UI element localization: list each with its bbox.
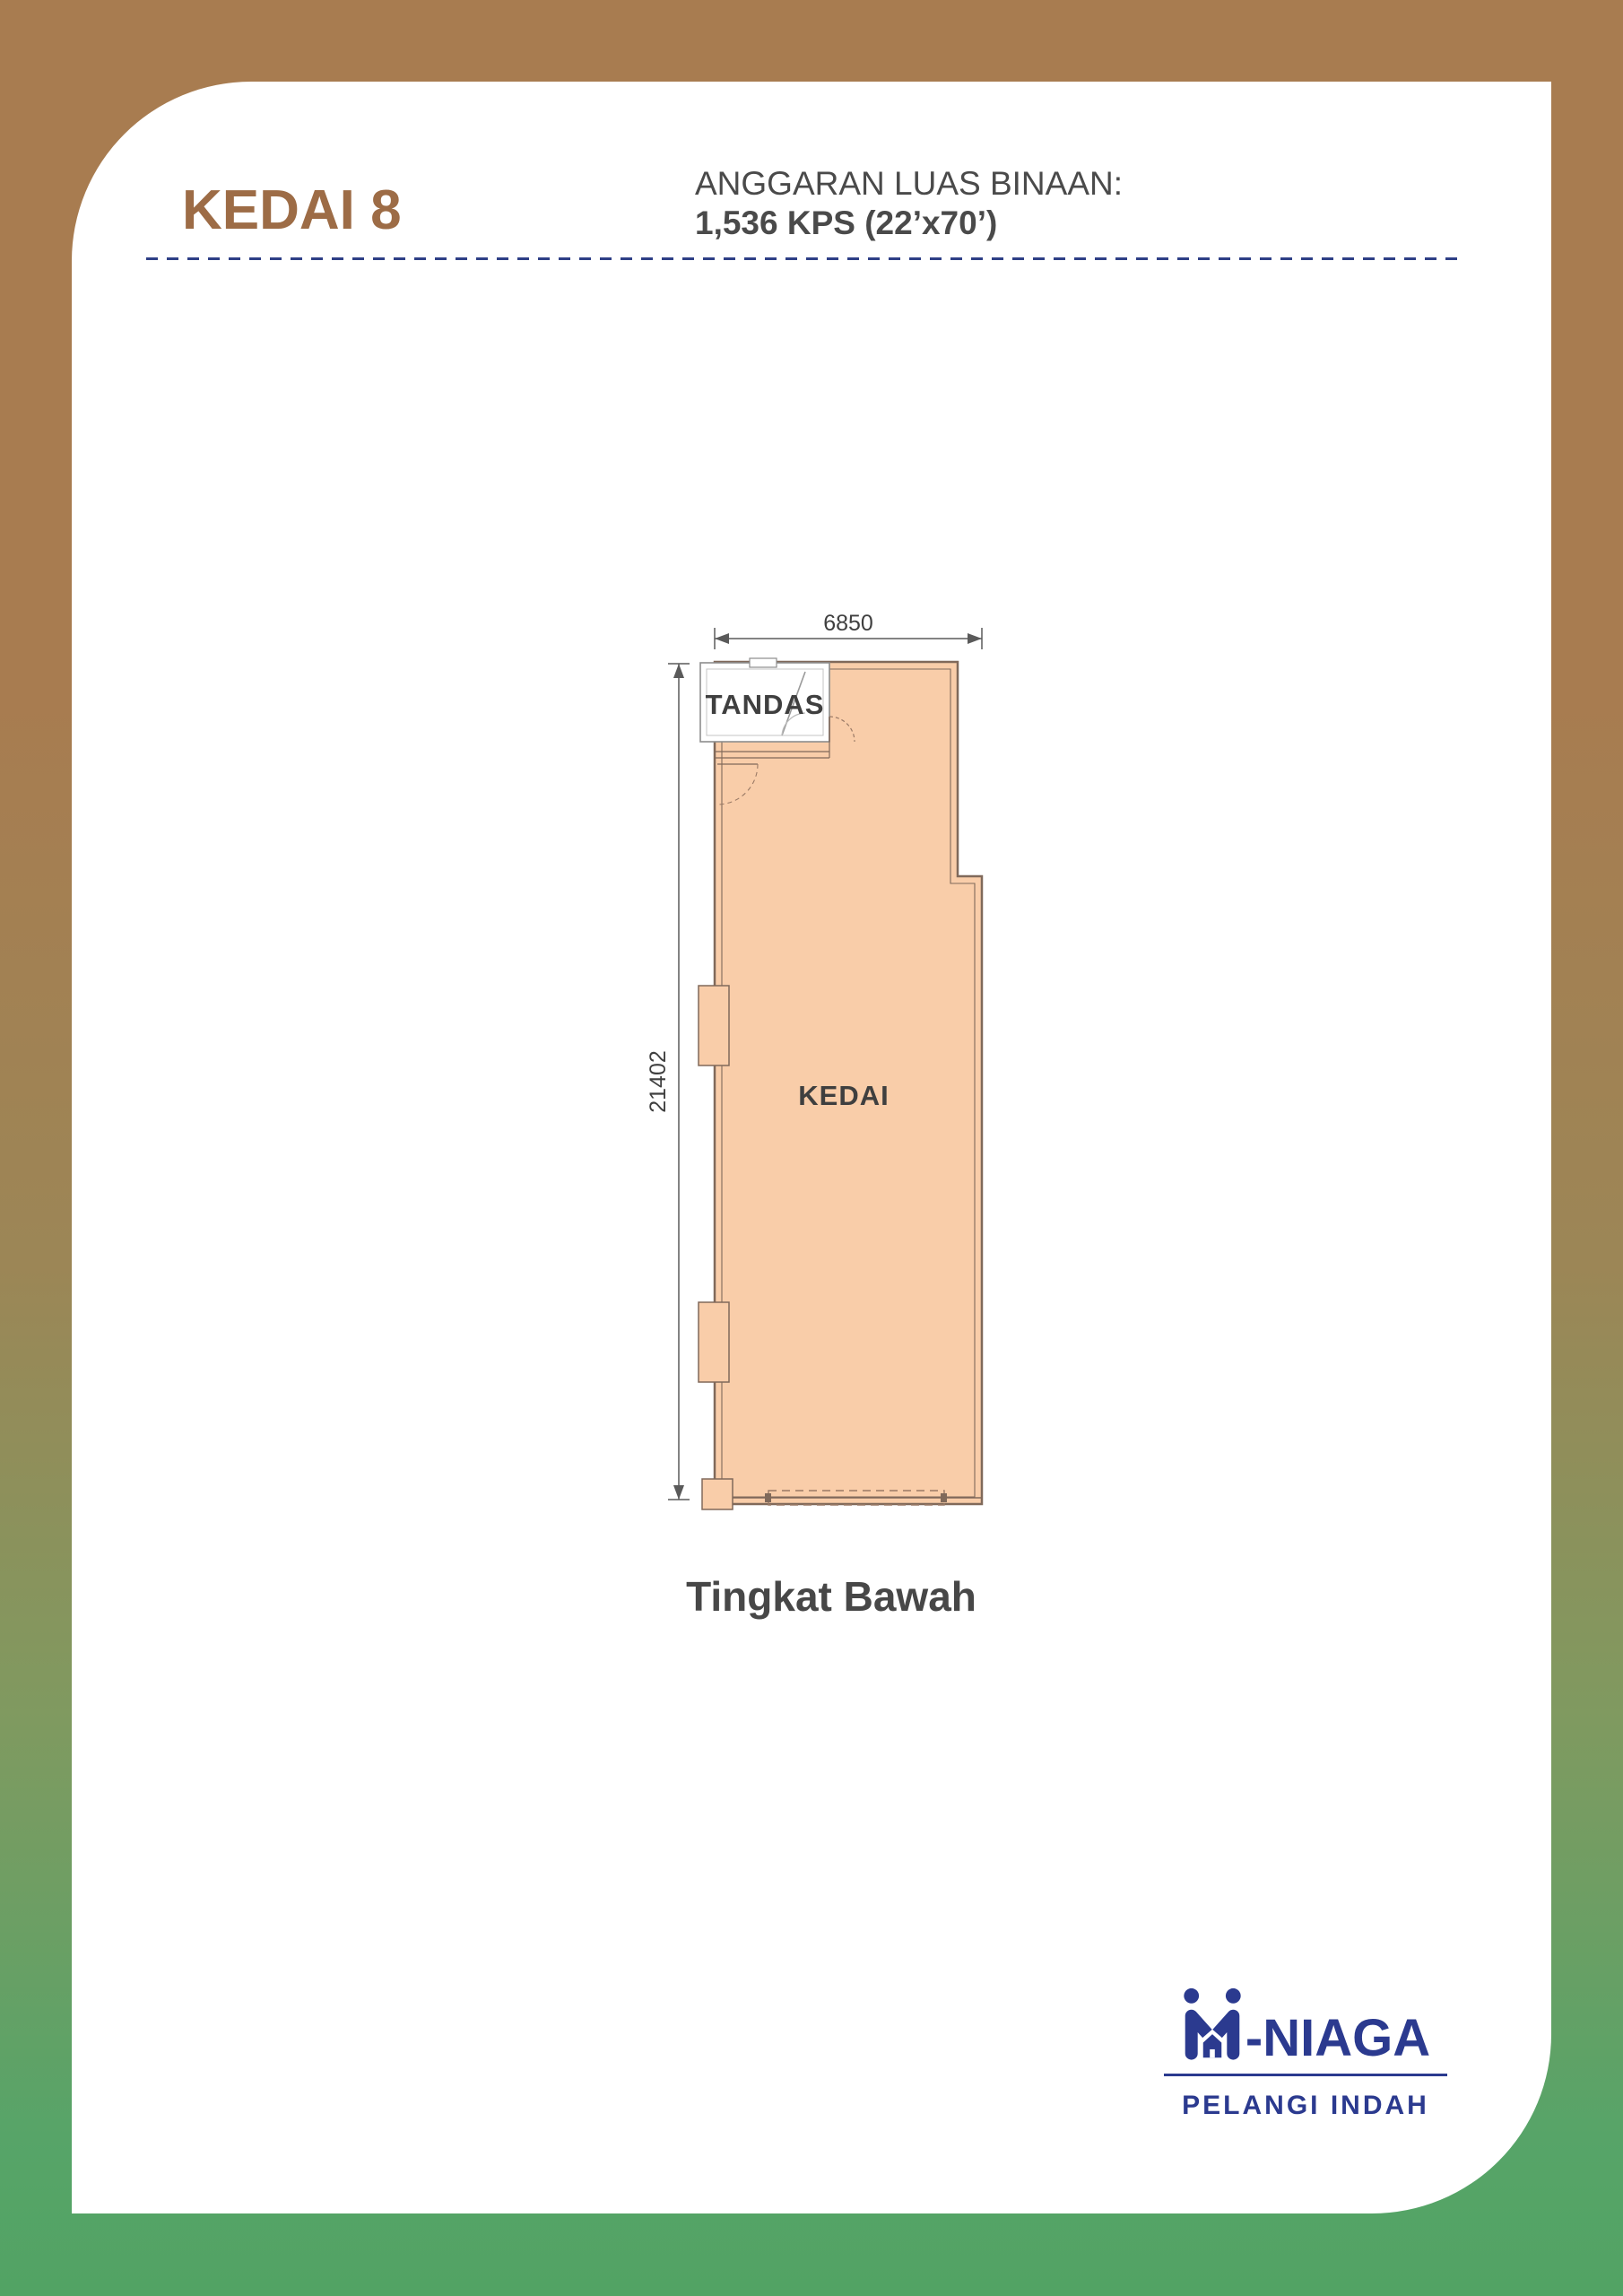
shutter-end-left: [765, 1493, 771, 1502]
brand-tagline: PELANGI INDAH: [1182, 2091, 1429, 2121]
logo-divider: [1164, 2074, 1447, 2076]
page-background: KEDAI 8 ANGGARAN LUAS BINAAN: 1,536 KPS …: [0, 0, 1623, 2296]
brand-logo-row: -NIAGA: [1181, 1987, 1430, 2061]
width-dimension-label: 6850: [823, 611, 873, 636]
corner-column: [702, 1479, 733, 1509]
brand-logo: -NIAGA PELANGI INDAH: [1164, 1987, 1447, 2121]
pilaster-lower: [699, 1302, 729, 1382]
floor-plan: 6850 21402: [628, 592, 1004, 1516]
height-dimension-label: 21402: [646, 1050, 671, 1113]
floor-caption: Tingkat Bawah: [625, 1572, 1037, 1621]
toilet-window: [750, 658, 777, 667]
area-info: ANGGARAN LUAS BINAAN: 1,536 KPS (22’x70’…: [695, 164, 1123, 243]
dashed-divider: [146, 257, 1457, 260]
page-title: KEDAI 8: [182, 178, 402, 242]
house-door: [1210, 2049, 1215, 2057]
area-value: 1,536 KPS (22’x70’): [695, 204, 1123, 243]
height-dimension: [668, 664, 690, 1500]
pilaster-upper: [699, 986, 729, 1065]
area-label: ANGGARAN LUAS BINAAN:: [695, 164, 1123, 204]
shop-label: KEDAI: [798, 1080, 889, 1111]
toilet-label: TANDAS: [706, 689, 825, 720]
shutter-end-right: [941, 1493, 947, 1502]
m-people-house-icon: [1181, 1987, 1244, 2061]
content-card: KEDAI 8 ANGGARAN LUAS BINAAN: 1,536 KPS …: [72, 82, 1551, 2213]
brand-name: -NIAGA: [1245, 2013, 1430, 2065]
